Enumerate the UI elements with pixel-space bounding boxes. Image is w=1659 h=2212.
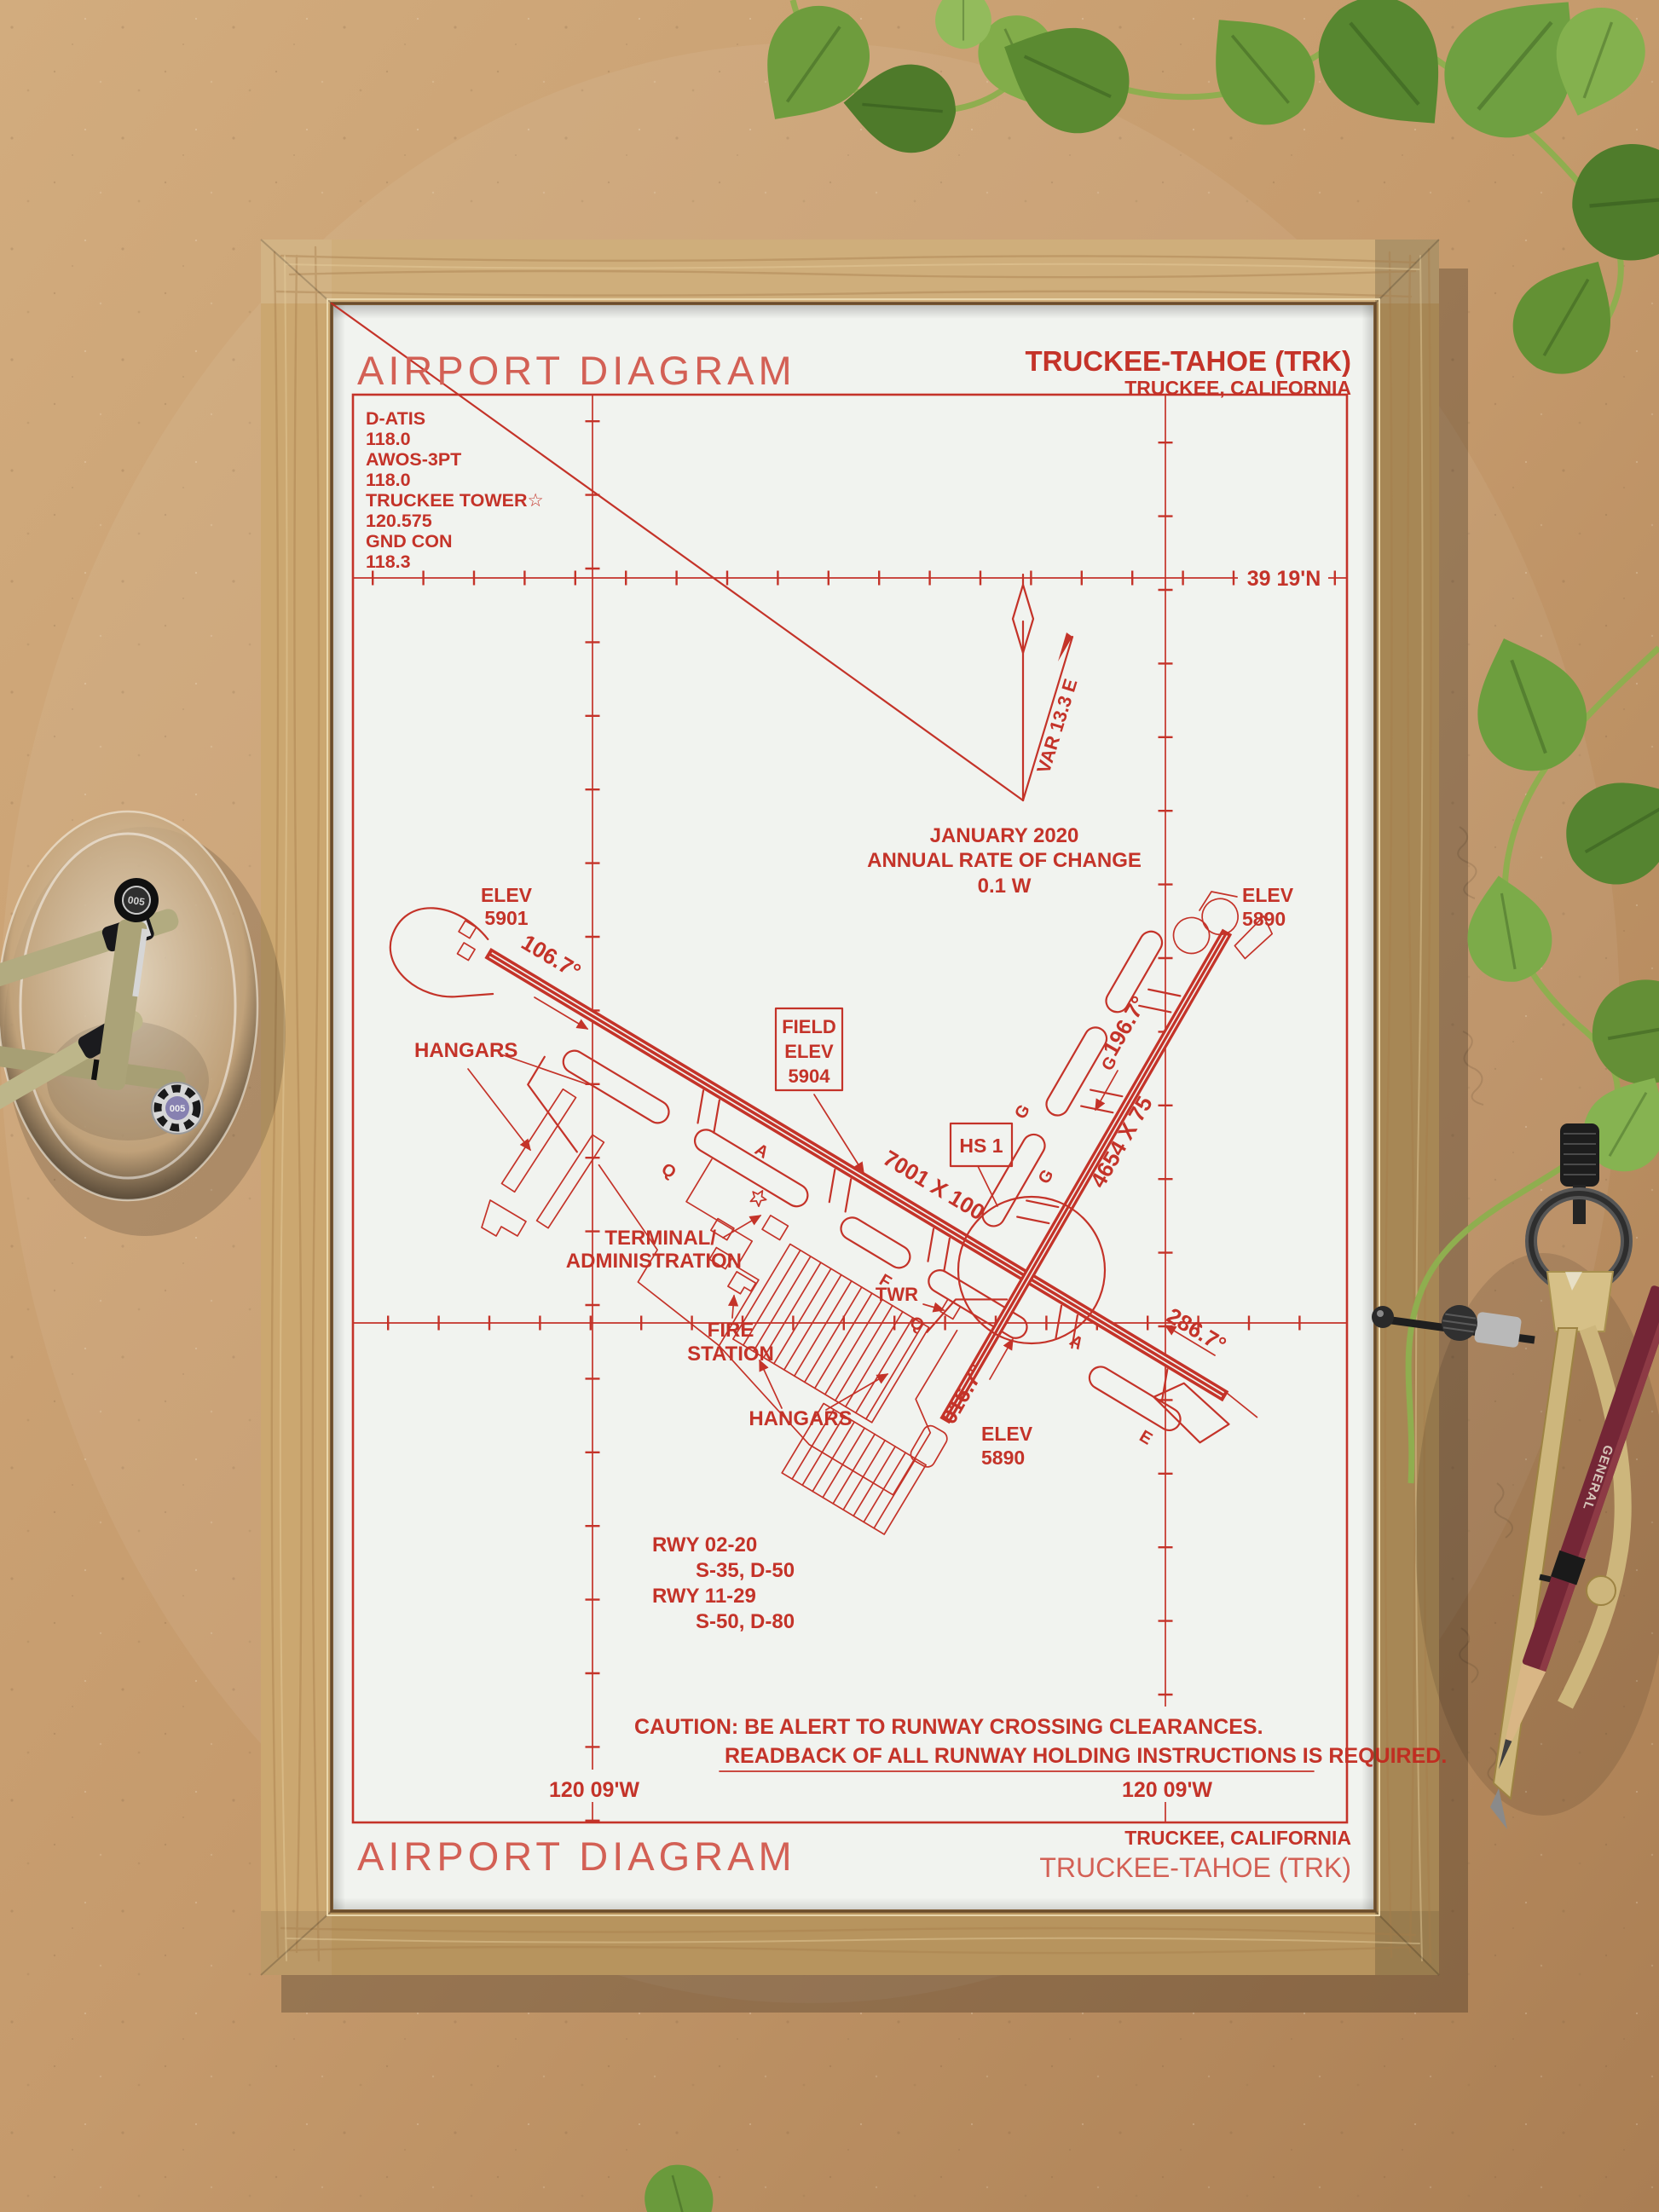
terminal-label-l0: TERMINAL/: [604, 1227, 716, 1250]
caution-line-1: CAUTION: BE ALERT TO RUNWAY CROSSING CLE…: [634, 1715, 1263, 1739]
footer-airport-city: TRUCKEE, CALIFORNIA: [1124, 1827, 1351, 1849]
variation-rate-value: 0.1 W: [978, 875, 1032, 898]
longitude-label-right: 120 09'W: [1122, 1778, 1212, 1802]
rwy-info-l2: RWY 11-29: [652, 1585, 756, 1608]
tower-label: TWR: [876, 1284, 918, 1305]
compass-hinge: [1547, 1272, 1613, 1331]
latitude-label: 39 19'N: [1247, 567, 1321, 591]
footer-airport-name: TRUCKEE-TAHOE (TRK): [1039, 1852, 1351, 1883]
comm-l4: TRUCKEE TOWER☆: [366, 490, 544, 511]
variation-date: JANUARY 2020: [930, 824, 1079, 847]
poster-paper: [333, 305, 1373, 1909]
rwy-info-l0: RWY 02-20: [652, 1533, 757, 1556]
footer-title: AIRPORT DIAGRAM: [357, 1834, 796, 1879]
fire-station-label-l0: FIRE: [708, 1319, 754, 1342]
comm-l7: 118.3: [366, 552, 411, 572]
rwy-info-l1: S-35, D-50: [696, 1559, 795, 1582]
terminal-label-l1: ADMINISTRATION: [566, 1250, 742, 1273]
comm-l2: AWOS-3PT: [366, 449, 461, 470]
comm-l3: 118.0: [366, 470, 411, 490]
caution-line-2: READBACK OF ALL RUNWAY HOLDING INSTRUCTI…: [725, 1744, 1447, 1768]
header-airport-city: TRUCKEE, CALIFORNIA: [1124, 377, 1351, 399]
elev-20-label: ELEV: [1242, 884, 1294, 906]
hangars-bottom-label: HANGARS: [749, 1407, 852, 1430]
field-elev-l1: ELEV: [784, 1041, 834, 1062]
hotspot-label: HS 1: [959, 1135, 1003, 1157]
pen-cap-disc: 005: [152, 1083, 203, 1134]
elev-11-label: ELEV: [481, 884, 533, 906]
hangars-left-label: HANGARS: [414, 1039, 517, 1062]
comm-l5: 120.575: [366, 511, 432, 531]
field-elev-l2: 5904: [789, 1066, 831, 1087]
field-elev-l0: FIELD: [782, 1016, 836, 1037]
pen-cap-label: 005: [127, 894, 146, 909]
header-airport-name: TRUCKEE-TAHOE (TRK): [1025, 345, 1351, 377]
photo-canvas: VAR 13.3 E JANUARY 2020 ANNUAL RATE OF C…: [0, 0, 1659, 2212]
elev-20-value: 5890: [1242, 908, 1286, 930]
comm-l6: GND CON: [366, 531, 453, 552]
elev-11-value: 5901: [484, 907, 528, 929]
comm-l1: 118.0: [366, 429, 411, 449]
variation-rate-label: ANNUAL RATE OF CHANGE: [867, 849, 1142, 872]
elev-02-label: ELEV: [981, 1423, 1033, 1445]
longitude-label-left: 120 09'W: [549, 1778, 639, 1802]
header-title: AIRPORT DIAGRAM: [357, 348, 796, 393]
pen-cap-label: 005: [170, 1104, 185, 1114]
photo-scene: VAR 13.3 E JANUARY 2020 ANNUAL RATE OF C…: [0, 0, 1659, 2212]
comm-l0: D-ATIS: [366, 408, 425, 429]
compass-adjust-nut: [1587, 1576, 1616, 1605]
rwy-info-l3: S-50, D-80: [696, 1610, 795, 1633]
elev-02-value: 5890: [981, 1447, 1025, 1469]
